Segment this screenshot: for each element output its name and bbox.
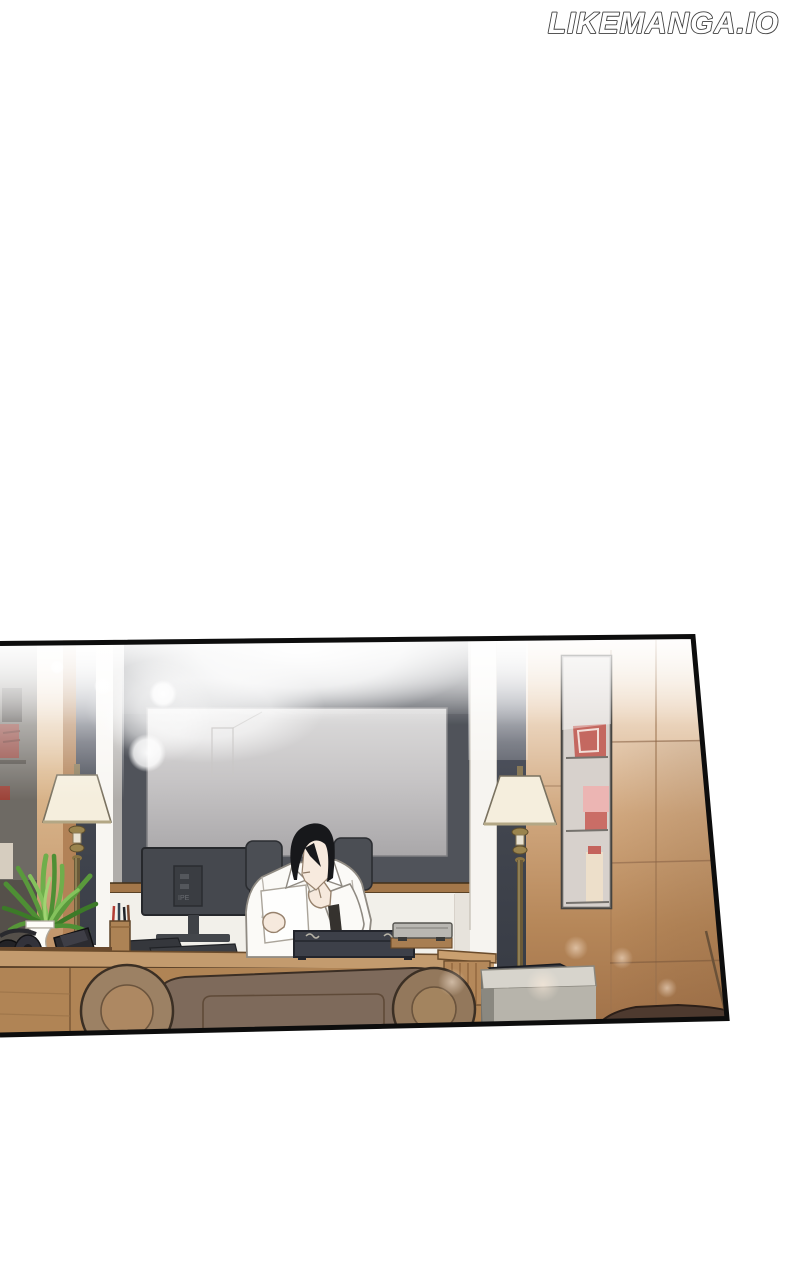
svg-text:LIKEMANGA.IO: LIKEMANGA.IO <box>548 7 779 40</box>
svg-text:IPE: IPE <box>178 895 190 902</box>
